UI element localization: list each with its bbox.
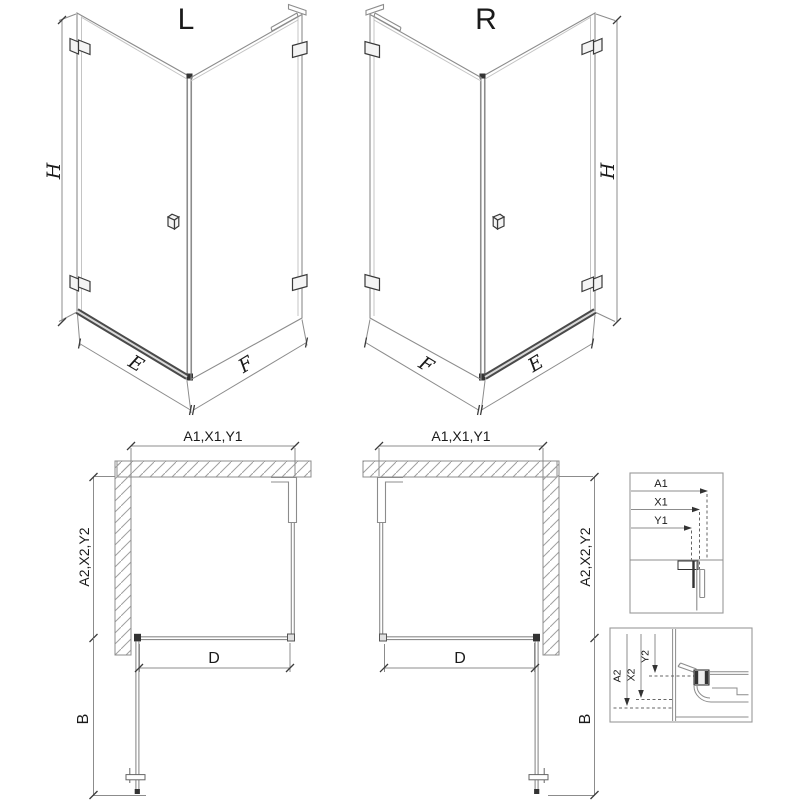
door-handle-plan: [529, 775, 548, 780]
detail-box-depth: A2 X2 Y2: [610, 628, 752, 722]
door-threshold-line: [380, 634, 541, 642]
shower-enclosure-drawing: L: [0, 0, 800, 800]
plan-view-left: A1,X1,Y1 A2,X2,Y2 B: [75, 428, 311, 799]
wall-top: [117, 461, 311, 477]
hinge-top: [582, 39, 602, 55]
hinge-bottom: [582, 276, 602, 292]
height-dim-label: H: [597, 162, 619, 180]
wall-clip-top: [365, 42, 380, 58]
dimension-panel-width: F: [193, 320, 308, 416]
clear-width-dim-label: D: [454, 650, 466, 667]
depth-dim-label: A2,X2,Y2: [76, 527, 92, 586]
dimension-door-swing: B: [548, 638, 599, 799]
wall-right: [543, 461, 559, 655]
hinge-section: [676, 663, 749, 717]
detail-y2-label: Y2: [640, 650, 652, 663]
technical-drawing-page: L: [0, 0, 800, 800]
detail-y1-label: Y1: [654, 515, 667, 527]
dimension-clear-width: D: [380, 643, 539, 672]
magnet-profile: [380, 634, 387, 641]
detail-x1-label: X1: [654, 497, 667, 509]
door-handle: [168, 214, 179, 229]
door-threshold-line: [134, 634, 295, 642]
detail-x2-label: X2: [626, 668, 638, 681]
wall-left: [115, 461, 131, 655]
corner-edge: [479, 74, 486, 381]
door-pivot: [134, 634, 141, 642]
clear-width-dim-label: D: [208, 650, 220, 667]
door-pivot: [533, 634, 540, 642]
plan-view-right: A1,X1,Y1 A2,X2,Y2 B: [363, 428, 599, 799]
width-dim-label: A1,X1,Y1: [431, 428, 490, 444]
dimension-depth: A2,X2,Y2: [559, 473, 599, 642]
dimension-panel-width: F: [365, 320, 480, 416]
door-swing-dim-label: B: [577, 714, 594, 725]
side-panel-glass: [378, 478, 404, 637]
dimension-door-width: E: [78, 315, 192, 415]
variant-label-right: R: [475, 3, 497, 36]
detail-a2-label: A2: [612, 669, 624, 682]
wall-clip-top: [293, 42, 308, 58]
dimension-clear-width: D: [135, 643, 294, 672]
dimension-door-width: E: [481, 315, 596, 415]
corner-bracket: [366, 5, 401, 32]
door-swing-dim-label: B: [75, 714, 92, 725]
wall-top: [363, 461, 557, 477]
corner-bracket: [271, 5, 306, 32]
depth-dim-label: A2,X2,Y2: [577, 527, 593, 586]
wall-clip-bottom: [293, 275, 308, 291]
side-panel: [370, 15, 481, 380]
detail-box-width: A1 X1 Y1: [630, 473, 723, 613]
profile-section: [678, 561, 705, 611]
width-dim-label: A1,X1,Y1: [183, 428, 242, 444]
height-dim-label: H: [43, 162, 65, 180]
detail-a1-label: A1: [654, 478, 667, 490]
magnet-profile: [288, 634, 295, 641]
door-handle: [493, 214, 504, 229]
door-handle-plan: [126, 775, 145, 780]
dimension-depth: A2,X2,Y2: [76, 473, 115, 642]
corner-edge: [187, 74, 194, 381]
variant-label-left: L: [178, 3, 195, 36]
hinge-bottom: [70, 276, 90, 292]
side-panel-glass: [271, 478, 297, 637]
iso-view-right: R: [365, 3, 622, 415]
iso-view-left: L: [43, 3, 308, 415]
hinge-top: [70, 39, 90, 55]
side-panel: [191, 15, 302, 380]
wall-clip-bottom: [365, 275, 380, 291]
